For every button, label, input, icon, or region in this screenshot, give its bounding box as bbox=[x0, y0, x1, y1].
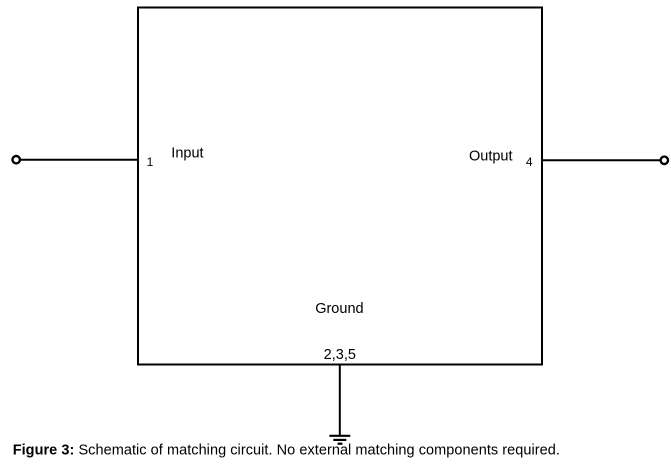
svg-text:Figure 3: Schematic of matchin: Figure 3: Schematic of matching circuit.… bbox=[13, 443, 560, 459]
svg-text:1: 1 bbox=[147, 155, 154, 169]
svg-text:Ground: Ground bbox=[315, 301, 363, 317]
svg-text:4: 4 bbox=[526, 155, 533, 169]
svg-text:2,3,5: 2,3,5 bbox=[324, 347, 356, 363]
svg-text:Input: Input bbox=[171, 145, 203, 161]
svg-text:Output: Output bbox=[469, 149, 513, 165]
